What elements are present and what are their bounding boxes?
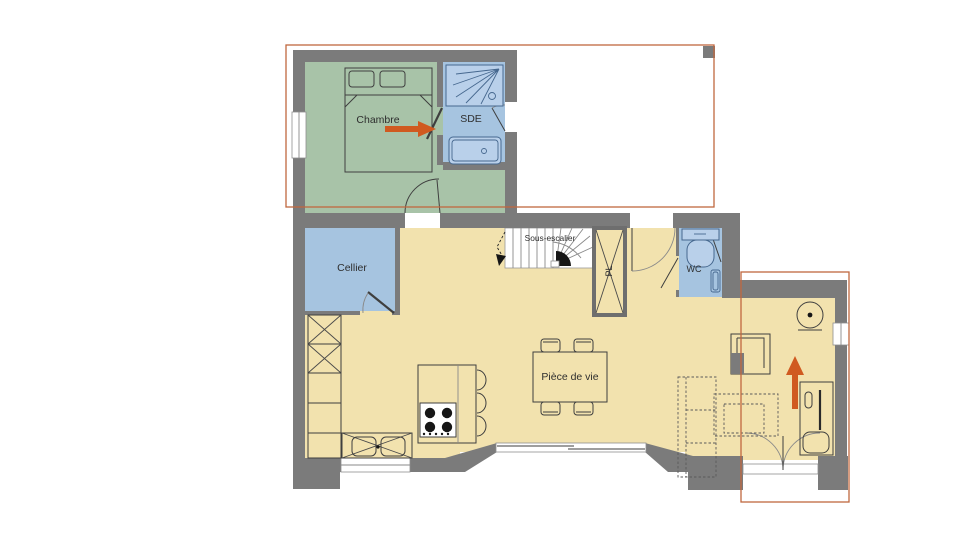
wall-bottom-right-b bbox=[818, 456, 848, 490]
wall-chambre-sde-upper bbox=[437, 62, 443, 107]
wall-left-upper bbox=[293, 62, 305, 113]
wall-mid-c bbox=[673, 213, 740, 228]
wall-bottom-b bbox=[410, 458, 445, 472]
label-sous-escalier: Sous-escalier bbox=[525, 233, 576, 243]
label-sde: SDE bbox=[460, 113, 482, 125]
wall-wc-partition-stub bbox=[676, 290, 679, 297]
wall-right-lower bbox=[835, 345, 847, 460]
porch-pillar bbox=[703, 46, 715, 58]
floor-plan: Chambre SDE Cellier Sous-escalier PL WC … bbox=[0, 0, 960, 540]
wall-sde-right-upper bbox=[505, 62, 517, 102]
wall-top-right bbox=[740, 280, 847, 298]
exterior-recess bbox=[460, 452, 685, 507]
toilet bbox=[682, 229, 719, 267]
label-wc: WC bbox=[687, 264, 702, 274]
shower bbox=[446, 65, 503, 106]
wall-left-lower bbox=[293, 157, 305, 472]
wall-chambre-sde-lower bbox=[437, 135, 443, 165]
label-pl: PL bbox=[604, 265, 614, 276]
wall-cellier-bottom-a bbox=[305, 311, 360, 315]
wall-right-upper bbox=[835, 298, 847, 323]
wall-mid-a bbox=[293, 213, 405, 228]
label-cellier: Cellier bbox=[337, 262, 367, 274]
label-chambre: Chambre bbox=[356, 114, 399, 126]
floor-plan-canvas: Chambre SDE Cellier Sous-escalier PL WC … bbox=[0, 0, 960, 540]
faucet bbox=[376, 445, 379, 448]
sliding-bay-window bbox=[496, 443, 646, 452]
stair-post bbox=[551, 261, 559, 267]
wall-top bbox=[293, 50, 517, 62]
wall-cellier-right bbox=[395, 228, 400, 315]
french-door-threshold bbox=[743, 464, 818, 474]
label-piece-de-vie: Pièce de vie bbox=[541, 371, 598, 383]
wall-bottom-right-a bbox=[688, 456, 743, 490]
cooktop bbox=[420, 403, 456, 437]
bathroom-vanity bbox=[449, 137, 501, 164]
wall-wc-partition bbox=[676, 228, 679, 256]
wall-wc-right bbox=[722, 228, 740, 298]
wall-bottom-a bbox=[293, 458, 341, 472]
wall-sde-right-lower bbox=[505, 132, 517, 213]
wall-mid-b bbox=[440, 213, 630, 228]
